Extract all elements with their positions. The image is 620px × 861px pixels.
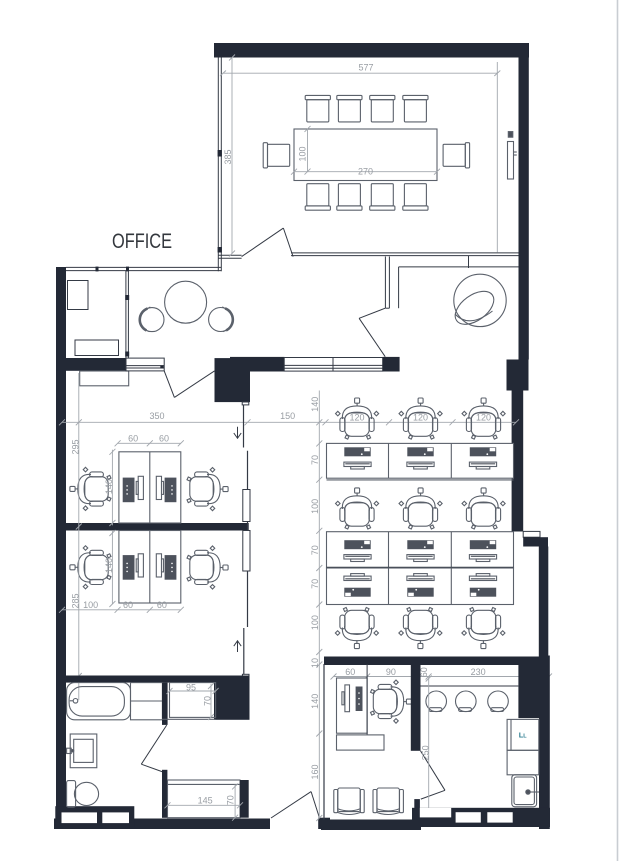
svg-text:OFFICE: OFFICE	[112, 230, 172, 253]
svg-text:60: 60	[419, 667, 429, 677]
svg-text:60: 60	[345, 667, 355, 677]
svg-text:140: 140	[310, 694, 320, 709]
svg-text:60: 60	[159, 434, 169, 444]
svg-text:230: 230	[471, 667, 486, 677]
svg-text:140: 140	[104, 479, 114, 494]
svg-text:90: 90	[386, 667, 396, 677]
svg-text:120: 120	[413, 413, 428, 423]
svg-text:120: 120	[476, 413, 491, 423]
svg-text:577: 577	[358, 63, 373, 73]
svg-text:95: 95	[186, 683, 196, 693]
svg-text:60: 60	[157, 600, 167, 610]
svg-text:250: 250	[421, 745, 431, 760]
svg-text:350: 350	[149, 411, 164, 421]
svg-text:100: 100	[298, 146, 308, 161]
svg-text:70: 70	[203, 696, 213, 706]
svg-text:160: 160	[310, 764, 320, 779]
svg-text:60: 60	[128, 434, 138, 444]
svg-text:385: 385	[223, 149, 233, 164]
svg-text:100: 100	[83, 600, 98, 610]
svg-text:140: 140	[310, 397, 320, 412]
svg-text:70: 70	[310, 545, 320, 555]
svg-text:150: 150	[280, 411, 295, 421]
svg-text:70: 70	[310, 579, 320, 589]
svg-text:70: 70	[226, 795, 236, 805]
svg-text:70: 70	[310, 455, 320, 465]
svg-text:140: 140	[104, 558, 114, 573]
svg-text:145: 145	[198, 795, 213, 805]
svg-text:100: 100	[310, 499, 320, 514]
svg-text:10: 10	[310, 658, 320, 668]
svg-text:295: 295	[70, 439, 80, 454]
svg-text:285: 285	[70, 593, 80, 608]
svg-text:60: 60	[123, 600, 133, 610]
svg-text:120: 120	[349, 413, 364, 423]
svg-text:100: 100	[310, 615, 320, 630]
svg-text:270: 270	[358, 167, 373, 177]
